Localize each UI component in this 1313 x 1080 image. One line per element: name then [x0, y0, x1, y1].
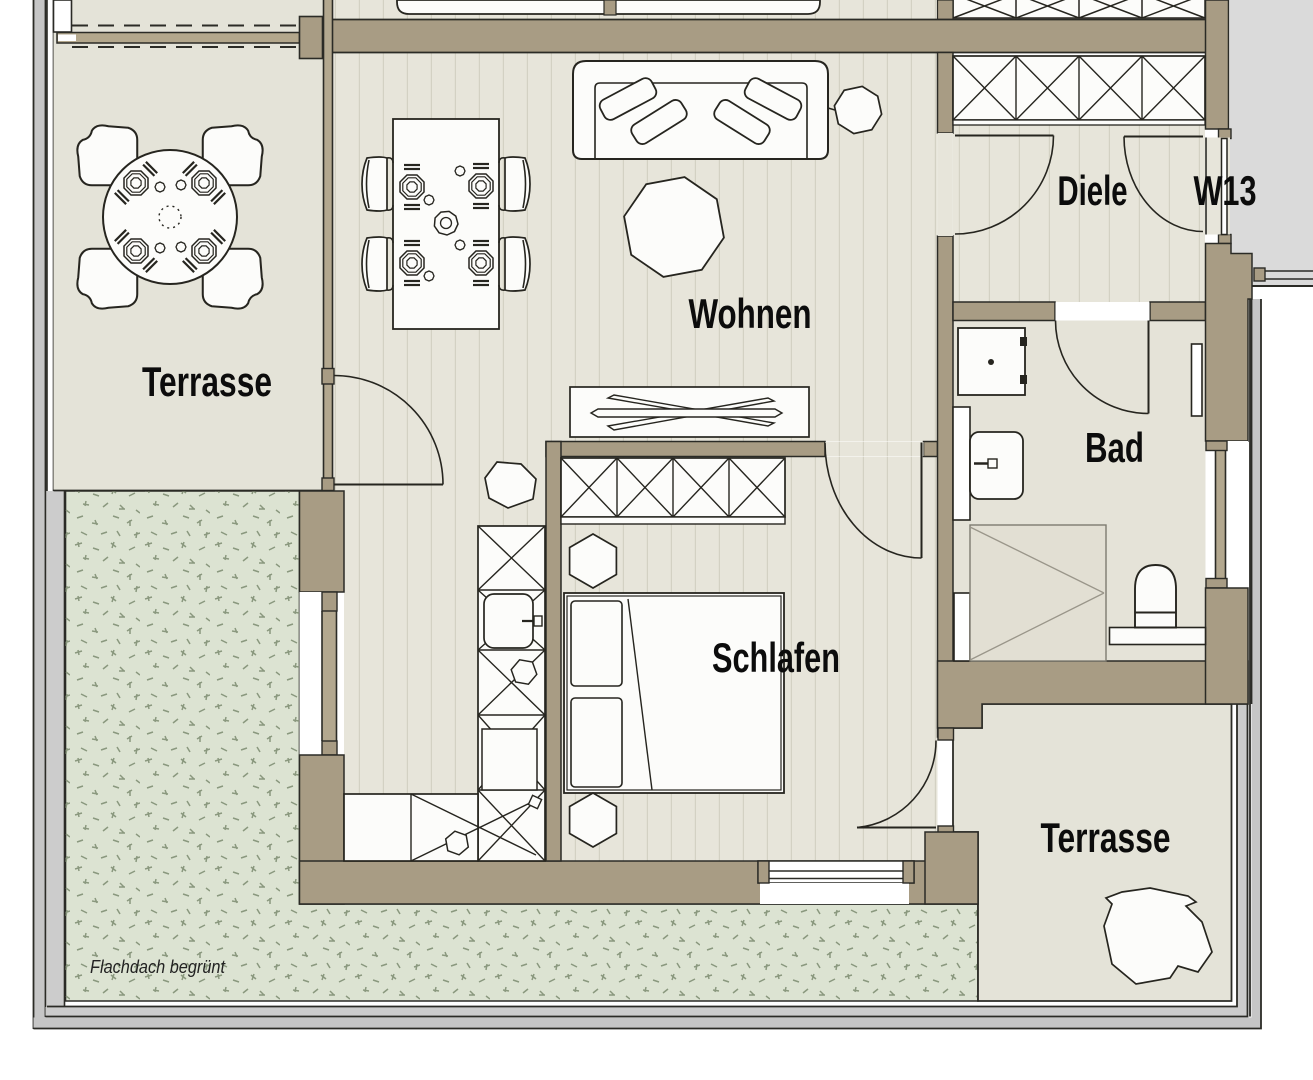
svg-text:Terrasse: Terrasse [142, 358, 272, 405]
svg-text:Terrasse: Terrasse [1041, 814, 1171, 861]
svg-text:W13: W13 [1194, 167, 1257, 214]
svg-text:Bad: Bad [1085, 424, 1144, 471]
svg-text:Wohnen: Wohnen [689, 290, 812, 337]
svg-text:Schlafen: Schlafen [712, 634, 840, 681]
svg-text:Diele: Diele [1058, 167, 1128, 214]
svg-text:Flachdach begrünt: Flachdach begrünt [90, 956, 226, 977]
